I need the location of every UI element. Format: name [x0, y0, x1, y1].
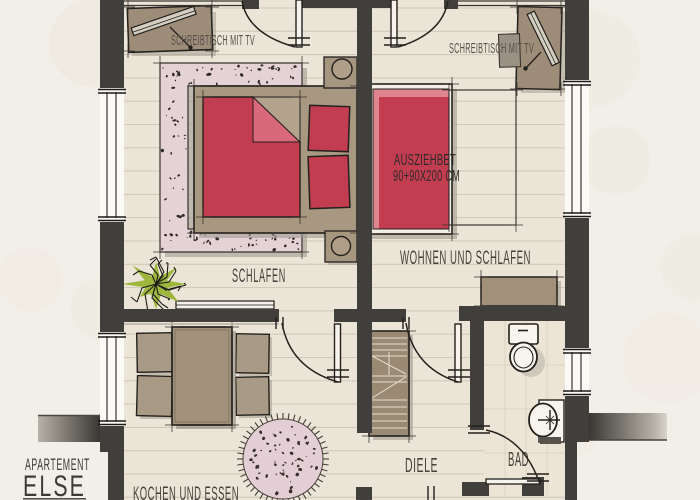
svg-text:AUSZIEHBET: AUSZIEHBET: [394, 152, 456, 169]
svg-text:ELSE: ELSE: [23, 470, 86, 500]
svg-text:SCHREIBTISCH MIT TV: SCHREIBTISCH MIT TV: [171, 32, 255, 49]
svg-text:BAD: BAD: [508, 449, 529, 471]
svg-text:SCHREIBTISCH MIT TV: SCHREIBTISCH MIT TV: [449, 40, 534, 57]
svg-text:KOCHEN UND ESSEN: KOCHEN UND ESSEN: [133, 484, 239, 500]
svg-text:SCHLAFEN: SCHLAFEN: [232, 266, 286, 287]
svg-text:WOHNEN UND SCHLAFEN: WOHNEN UND SCHLAFEN: [400, 248, 531, 269]
svg-text:DIELE: DIELE: [405, 455, 438, 477]
svg-text:90+90X200 CM: 90+90X200 CM: [393, 168, 460, 185]
